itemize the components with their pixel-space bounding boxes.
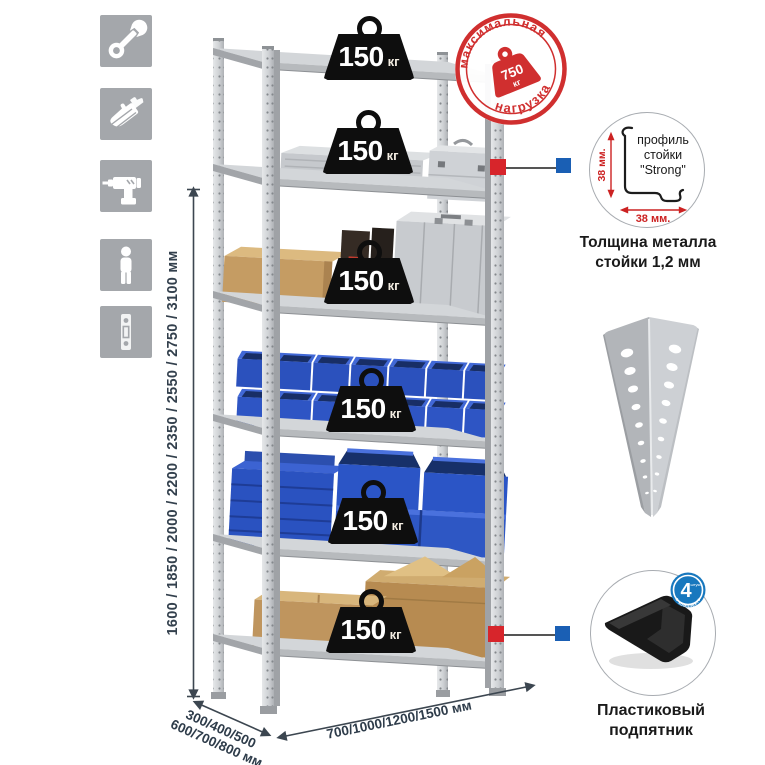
shelf-load-value: 150 xyxy=(338,41,383,73)
callout-blue-marker-top xyxy=(556,158,571,173)
callout-red-marker-top xyxy=(490,159,506,175)
kit-count-badge: 4 штуки в комплекте xyxy=(669,571,707,609)
wrench-icon xyxy=(100,15,152,67)
callout-red-marker-bottom xyxy=(488,626,504,642)
shelf-load-value: 150 xyxy=(340,614,385,646)
profile-dim-vertical: 38 мм. xyxy=(596,148,608,181)
person-icon xyxy=(100,239,152,291)
shelf-load-value: 150 xyxy=(342,505,387,537)
callout-line-bottom xyxy=(504,634,557,636)
thickness-caption: Толщина металла стойки 1,2 мм xyxy=(553,233,743,273)
shelf-2-load-badge: 150кг xyxy=(323,110,413,174)
profile-caption-2: стойки xyxy=(644,148,682,162)
width-dimension-label: 700/1000/1200/1500 мм xyxy=(325,698,473,742)
shelf-load-value: 150 xyxy=(337,135,382,167)
shelf-load-unit: кг xyxy=(388,278,400,293)
gloves-icon xyxy=(100,88,152,140)
angle-post-image xyxy=(597,307,705,532)
bottom-dimensions: 300/400/500 600/700/800 мм 700/1000/1200… xyxy=(140,650,560,765)
shelf-4-load-badge: 150кг xyxy=(326,368,416,432)
max-load-stamp: максимальная нагрузка 750 кг xyxy=(451,9,571,129)
shelf-load-unit: кг xyxy=(390,406,402,421)
foot-caption-line1: Пластиковый xyxy=(597,702,705,719)
foot-caption-line2: подпятник xyxy=(609,722,693,739)
shelf-load-unit: кг xyxy=(388,54,400,69)
drill-icon xyxy=(100,160,152,212)
callout-line-top xyxy=(505,167,557,169)
thickness-caption-line1: Толщина металла xyxy=(580,234,717,251)
callout-blue-marker-bottom xyxy=(555,626,570,641)
shelf-1-load-badge: 150кг xyxy=(324,16,414,80)
shelf-3-load-badge: 150кг xyxy=(324,240,414,304)
height-dimension: 1600 / 1850 / 2000 / 2200 / 2350 / 2550 … xyxy=(158,175,208,710)
profile-dim-horizontal: 38 мм. xyxy=(636,213,671,225)
perforated-strip-icon xyxy=(100,306,152,358)
thickness-caption-line2: стойки 1,2 мм xyxy=(595,254,700,271)
shelf-5-load-badge: 150кг xyxy=(328,480,418,544)
shelf-6-load-badge: 150кг xyxy=(326,589,416,653)
profile-caption-1: профиль xyxy=(637,133,689,147)
foot-caption: Пластиковый подпятник xyxy=(566,701,736,742)
shelf-load-unit: кг xyxy=(390,627,402,642)
shelf-load-unit: кг xyxy=(392,518,404,533)
height-dimension-label: 1600 / 1850 / 2000 / 2200 / 2350 / 2550 … xyxy=(165,251,181,636)
post-profile-detail: 38 мм. 38 мм. профиль стойки "Strong" xyxy=(589,112,705,228)
profile-caption-3: "Strong" xyxy=(640,163,686,177)
shelf-load-value: 150 xyxy=(340,393,385,425)
shelf-load-unit: кг xyxy=(387,148,399,163)
kit-count-suffix: штуки xyxy=(690,582,701,587)
shelf-load-value: 150 xyxy=(338,265,383,297)
product-diagram: 1600 / 1850 / 2000 / 2200 / 2350 / 2550 … xyxy=(0,0,765,765)
